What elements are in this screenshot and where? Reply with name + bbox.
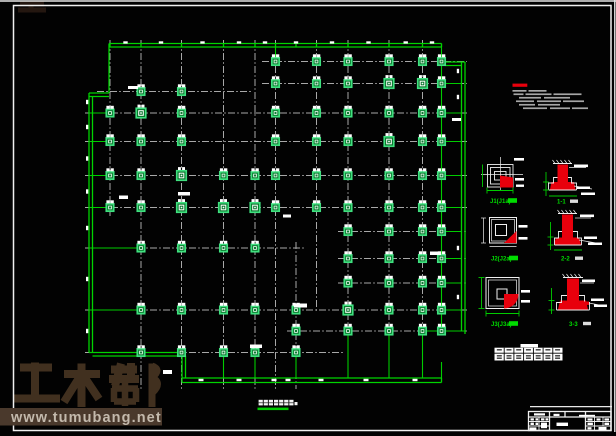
svg-text:1-1: 1-1 xyxy=(557,200,566,206)
svg-text:J1(J1a): J1(J1a) xyxy=(490,199,511,205)
svg-text:J2(J2a): J2(J2a) xyxy=(491,257,512,263)
svg-text:3-3: 3-3 xyxy=(569,322,578,328)
svg-text:J3(J3a): J3(J3a) xyxy=(491,322,512,328)
svg-text:www.tumubang.net: www.tumubang.net xyxy=(10,410,162,426)
svg-text:2-2: 2-2 xyxy=(561,257,570,263)
